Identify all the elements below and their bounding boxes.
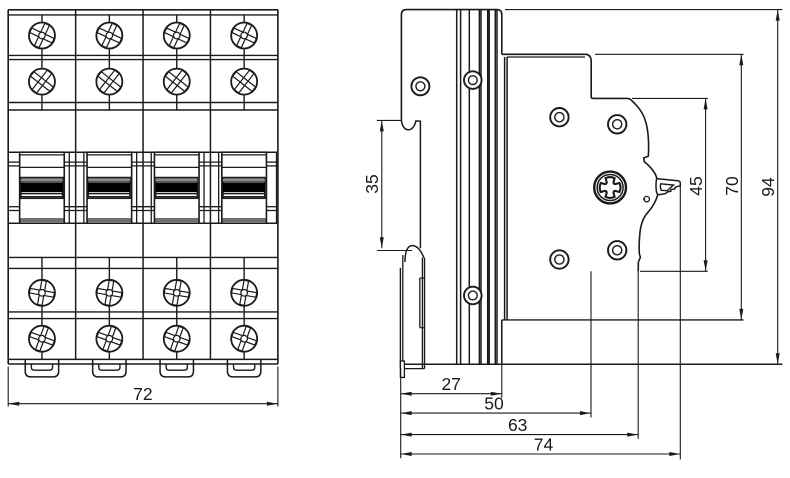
svg-text:35: 35 (362, 174, 382, 193)
svg-text:63: 63 (508, 415, 527, 435)
svg-text:45: 45 (686, 176, 706, 195)
svg-text:74: 74 (534, 434, 554, 454)
svg-text:50: 50 (484, 394, 504, 414)
svg-text:94: 94 (758, 177, 778, 197)
svg-text:72: 72 (133, 384, 152, 404)
svg-text:70: 70 (722, 176, 742, 196)
svg-text:27: 27 (441, 374, 460, 394)
